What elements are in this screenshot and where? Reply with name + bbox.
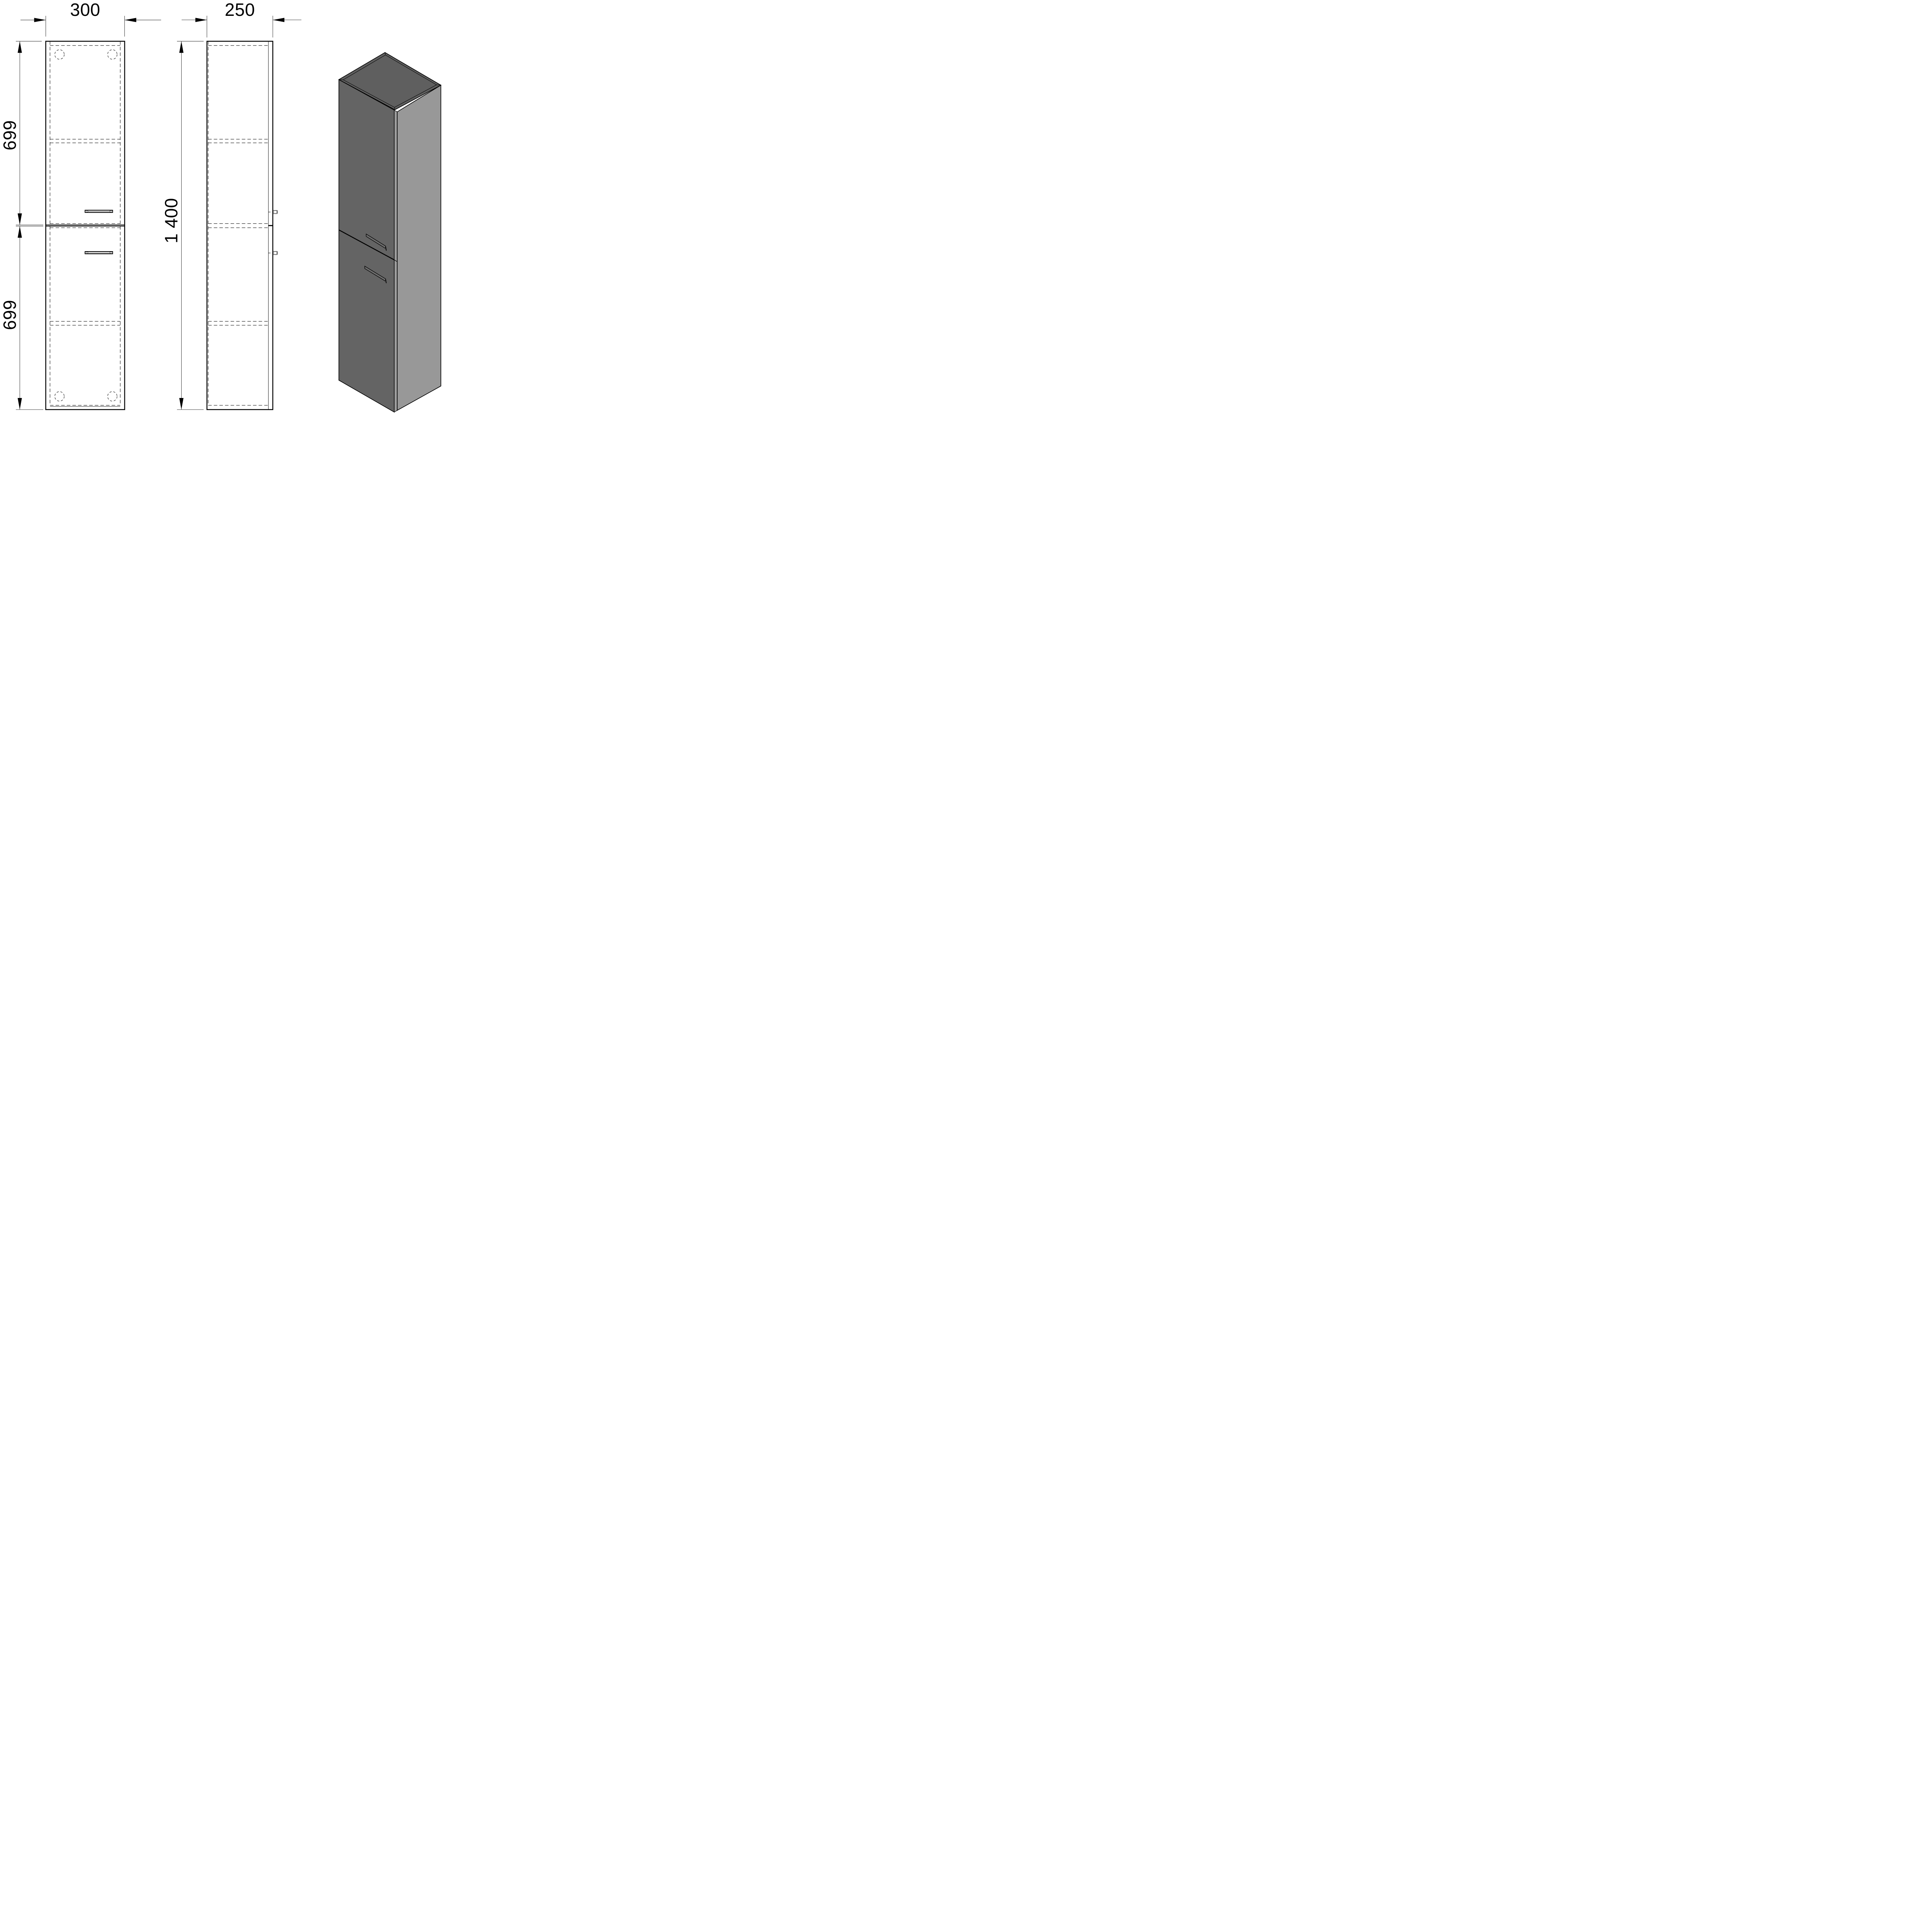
arrowhead-icon [18,41,22,53]
front-width-label: 300 [70,0,100,20]
handle-screw-icon [110,211,111,212]
front-view [46,41,124,410]
front-view-outline [46,41,124,410]
drawing-sheet: 300 250 699 699 1 400 [0,0,451,424]
dimension-upper-section: 699 [0,41,43,226]
side-view-outline [207,41,273,410]
handle-screw-icon [87,211,88,212]
iso-view [339,53,441,412]
side-view [207,41,278,410]
arrowhead-icon [273,18,284,22]
arrowhead-icon [179,398,184,410]
iso-edge-strip [394,110,397,412]
dimension-total-height: 1 400 [161,41,204,410]
arrowhead-icon [34,18,46,22]
dimension-side-depth: 250 [182,0,301,37]
handle-screw-icon [87,252,88,253]
handle-screw-icon [110,252,111,253]
front-hole-bottom-left [55,392,65,401]
arrowhead-icon [18,398,22,410]
arrowhead-icon [18,226,22,238]
arrowhead-icon [18,213,22,225]
arrowhead-icon [125,18,136,22]
side-depth-label: 250 [225,0,255,20]
dimension-lower-section: 699 [0,226,43,410]
front-hole-bottom-right [108,392,117,401]
iso-front-face [339,80,394,412]
dimension-front-width: 300 [20,0,161,37]
side-door-gap [269,225,273,226]
upper-section-height-label: 699 [0,120,20,150]
arrowhead-icon [196,18,207,22]
total-height-label: 1 400 [161,198,181,243]
arrowhead-icon [179,41,184,53]
lower-section-height-label: 699 [0,300,20,330]
front-hole-top-left [55,50,65,60]
front-hole-top-right [108,50,117,60]
front-lower-handle [85,252,112,254]
iso-side-face [397,85,441,410]
front-upper-handle [85,210,112,213]
cabinet-technical-drawing: 300 250 699 699 1 400 [0,0,451,424]
